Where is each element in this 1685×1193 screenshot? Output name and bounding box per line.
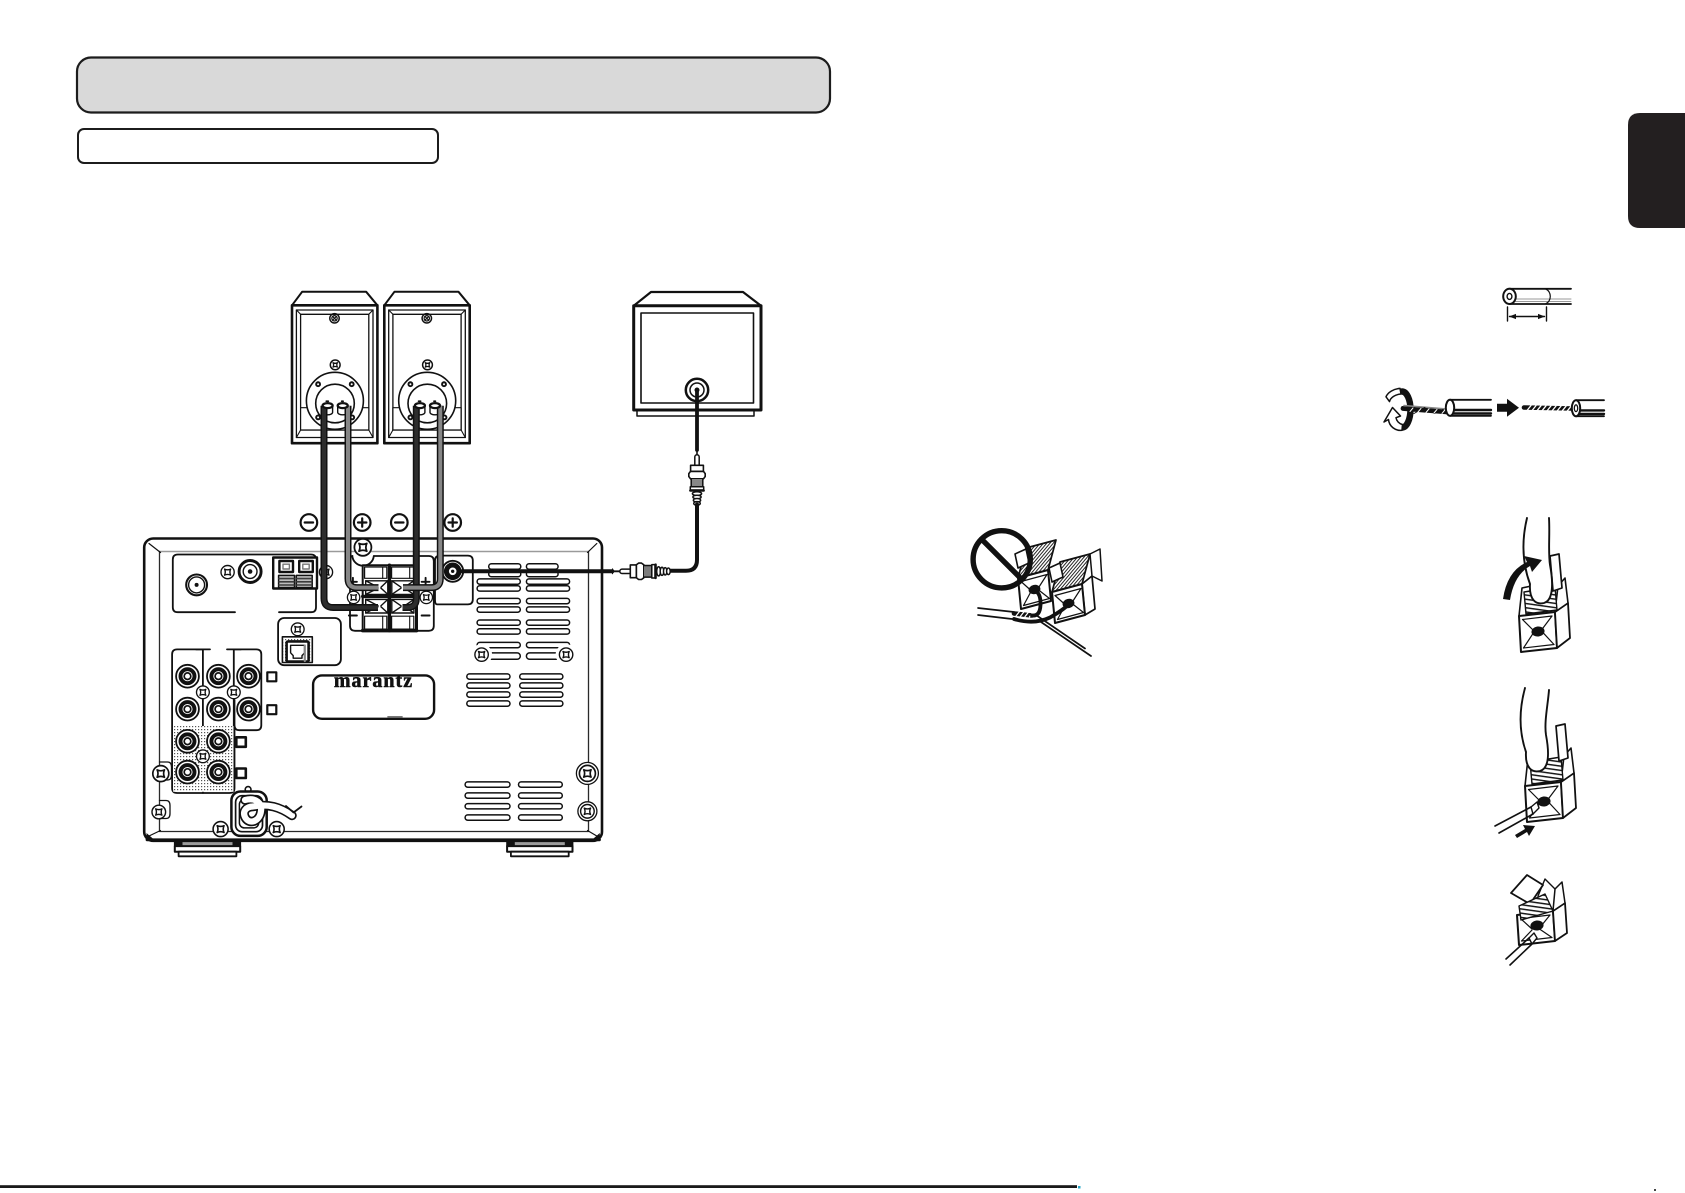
svg-text:marantz: marantz	[334, 670, 413, 692]
